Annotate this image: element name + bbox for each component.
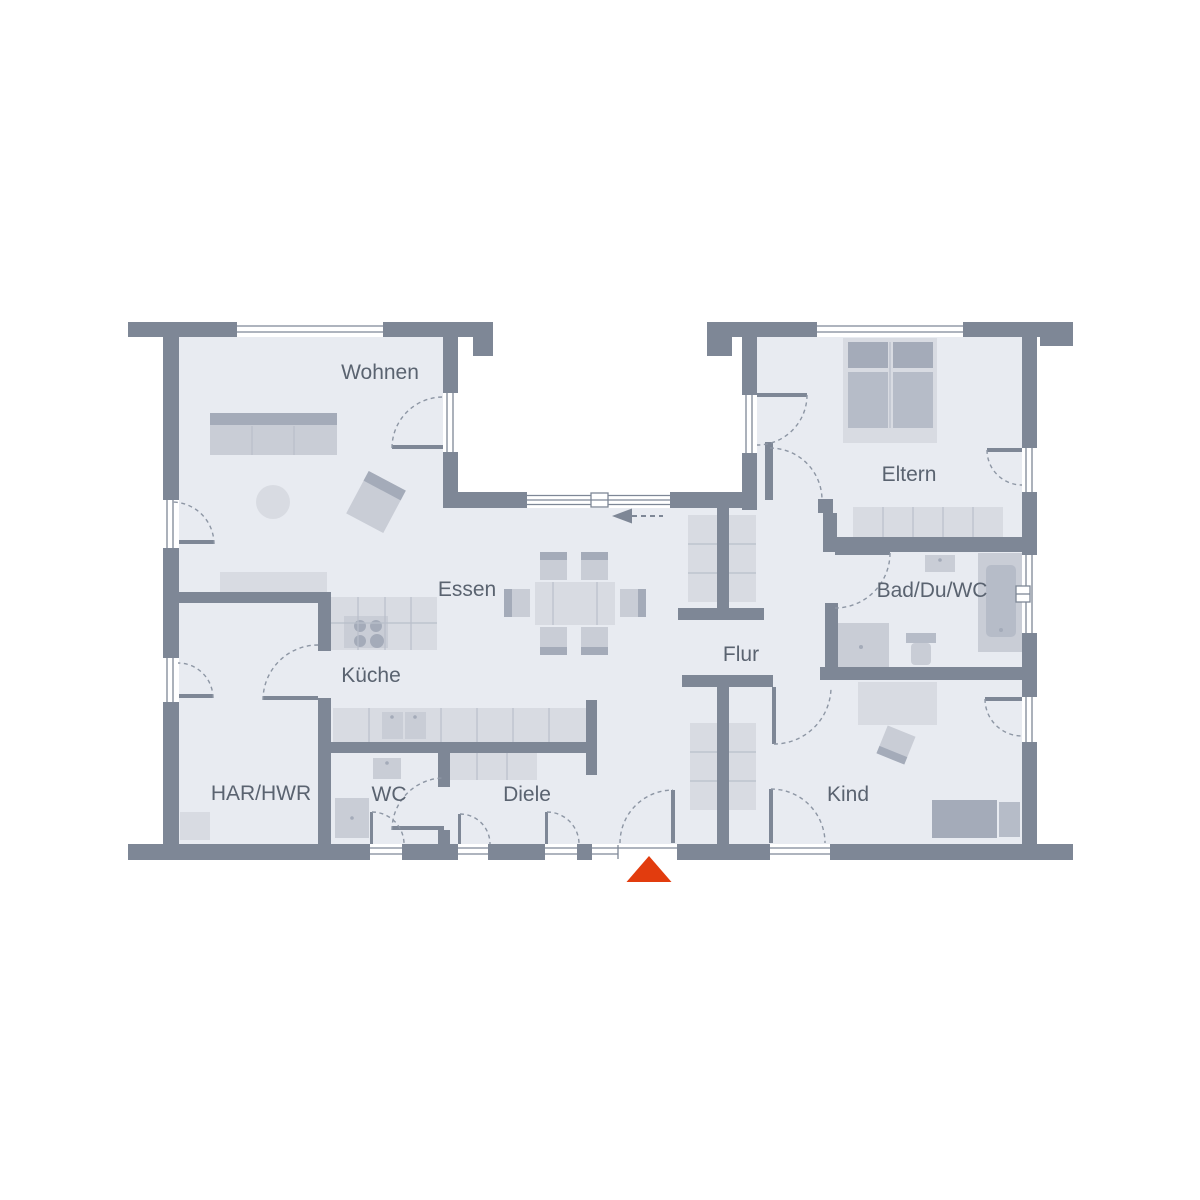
room-label-eltern: Eltern — [882, 463, 937, 486]
bad-toilet-tank — [906, 633, 936, 643]
flur-closet-upper-right — [729, 515, 756, 602]
sofa-back — [210, 413, 337, 425]
flur-closet-upper-left — [688, 515, 717, 602]
window — [370, 844, 402, 860]
window — [817, 322, 963, 337]
window — [1022, 697, 1037, 742]
burner — [370, 634, 384, 648]
room-label-essen: Essen — [438, 578, 496, 601]
faucet-dot — [385, 761, 389, 765]
entrance-door — [592, 844, 677, 860]
bathtub — [986, 565, 1016, 637]
faucet-dot — [413, 715, 417, 719]
drain-dot — [999, 628, 1003, 632]
window — [237, 322, 383, 337]
door-leaf — [987, 448, 1022, 452]
window — [742, 395, 757, 453]
room-label-flur: Flur — [723, 643, 759, 666]
kind-desk — [858, 682, 937, 725]
eltern-mattress — [893, 372, 933, 428]
flur-closet-lower-right — [729, 723, 756, 810]
eltern-pillow — [893, 342, 933, 368]
room-label-wc: WC — [372, 783, 407, 806]
bad-toilet-bowl — [911, 643, 931, 665]
door-leaf — [768, 448, 772, 500]
room-label-har-hwr: HAR/HWR — [211, 782, 311, 805]
door-leaf — [769, 789, 773, 843]
burner — [354, 635, 366, 647]
dot — [350, 816, 354, 820]
chair-back — [581, 647, 608, 655]
dining-table — [535, 582, 615, 625]
kitchen-counter-bottom — [333, 708, 586, 742]
door-leaf — [545, 812, 548, 844]
room-label-diele: Diele — [503, 783, 551, 806]
eltern-wardrobe — [853, 507, 1003, 537]
wc-sink — [373, 758, 401, 779]
kind-bed-mattress — [932, 800, 997, 838]
window — [443, 393, 458, 452]
faucet-dot — [390, 715, 394, 719]
door-leaf — [835, 551, 890, 555]
window — [163, 500, 179, 548]
room-label-bad: Bad/Du/WC — [877, 579, 988, 602]
door-leaf — [263, 696, 318, 700]
burner — [370, 620, 382, 632]
chair-back — [638, 589, 646, 617]
window — [770, 844, 830, 860]
faucet-dot — [938, 558, 942, 562]
door-leaf — [370, 812, 373, 844]
kind-bed-pillow — [999, 802, 1020, 837]
sideboard — [220, 572, 327, 592]
chair-back — [540, 552, 567, 560]
chair-back — [504, 589, 512, 617]
door-leaf — [392, 445, 443, 449]
room-label-kueche: Küche — [341, 664, 401, 687]
shower-dot — [859, 645, 863, 649]
bad-sink — [925, 555, 955, 572]
chair-back — [540, 647, 567, 655]
door-leaf — [671, 790, 675, 843]
room-label-kind: Kind — [827, 783, 869, 806]
door-leaf — [458, 814, 461, 844]
coffee-table — [256, 485, 290, 519]
room-label-wohnen: Wohnen — [341, 361, 419, 384]
door-leaf — [772, 687, 776, 744]
diele-wardrobe — [447, 753, 537, 780]
door-leaf — [985, 697, 1022, 701]
floorplan-page: Wohnen Essen Küche HAR/HWR WC Diele Flur… — [0, 0, 1200, 1200]
window — [163, 658, 179, 702]
door-leaf — [178, 694, 213, 698]
door-leaf — [757, 393, 807, 397]
eltern-mattress — [848, 372, 888, 428]
window — [545, 844, 577, 860]
eltern-pillow — [848, 342, 888, 368]
chair-back — [581, 552, 608, 560]
window — [458, 844, 488, 860]
floorplan-drawing: Wohnen Essen Küche HAR/HWR WC Diele Flur… — [0, 0, 1200, 1200]
window — [1022, 448, 1037, 492]
washing-machine — [180, 812, 210, 840]
flur-closet-lower-left — [690, 723, 717, 810]
burner — [354, 620, 366, 632]
